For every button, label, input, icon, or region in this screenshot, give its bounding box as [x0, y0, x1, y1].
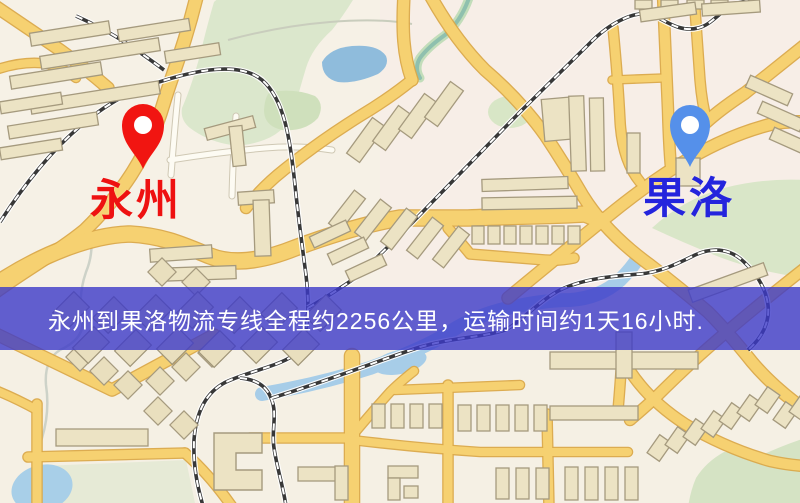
route-info-text: 永州到果洛物流专线全程约2256公里，运输时间约1天16小时.	[0, 302, 704, 336]
route-info-banner: 永州到果洛物流专线全程约2256公里，运输时间约1天16小时.	[0, 287, 800, 350]
destination-city-label: 果洛	[643, 178, 735, 221]
logistics-route-map: 永州 果洛 永州到果洛物流专线全程约2256公里，运输时间约1天16小时.	[0, 0, 800, 503]
map-canvas[interactable]	[0, 0, 800, 503]
origin-city-label: 永州	[90, 180, 182, 223]
destination-pin-icon[interactable]	[667, 103, 713, 169]
origin-pin-icon[interactable]	[119, 102, 167, 171]
